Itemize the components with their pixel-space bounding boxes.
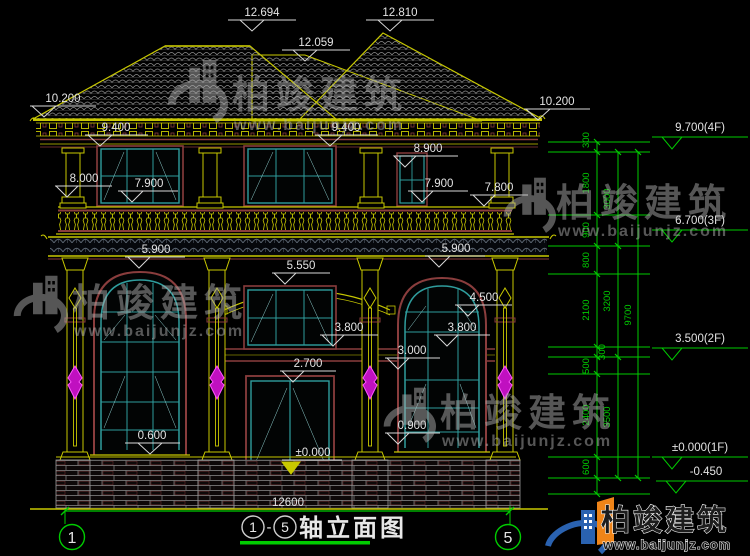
chain-seg: 300 xyxy=(597,344,608,360)
canopy-slab xyxy=(41,235,556,259)
axis-bubble-5: 5 xyxy=(496,525,521,550)
dim-arch-center: 5.550 xyxy=(287,260,316,272)
column-2f-4 xyxy=(489,148,515,208)
dim-rail-left: 7.900 xyxy=(135,178,164,190)
right-level-flags: 9.700(4F) 6.700(3F) 3.500(2F) ±0.000(1F)… xyxy=(652,122,748,493)
level-2f: 3.500(2F) xyxy=(675,333,725,345)
flag-1f: ±0.000(1F) xyxy=(652,442,748,469)
dim-eave-left: 10.200 xyxy=(45,93,80,105)
axis-bubble-1: 1 xyxy=(60,525,85,550)
drawing-title: 1 - 5 轴立面图 xyxy=(240,514,407,545)
window-1f-center xyxy=(244,286,336,349)
dim-head-right: 3.800 xyxy=(448,322,477,334)
brand-url: www.baijunjz.com xyxy=(602,537,731,552)
watermark-url: www.baijunjz.com xyxy=(441,433,612,450)
column-2f-3 xyxy=(358,148,384,208)
chain-seg: 300 xyxy=(581,132,592,148)
level-4f: 9.700(4F) xyxy=(675,122,725,134)
title-text: 轴立面图 xyxy=(299,514,407,542)
elevation-drawing: 12.694 12.810 12.059 10.200 10.200 9.400… xyxy=(0,0,750,556)
chain-seg: 500 xyxy=(581,358,592,374)
flag-2f: 3.500(2F) xyxy=(652,333,748,360)
dim-capital-left: 8.000 xyxy=(70,173,99,185)
level-1f: ±0.000(1F) xyxy=(672,442,728,454)
dim-sill-left: 0.600 xyxy=(138,430,167,442)
title-dash: - xyxy=(267,519,272,536)
overall-width-dim: 12600 xyxy=(272,497,304,509)
flag-eave-right: 10.200 xyxy=(524,96,590,120)
chain-seg: 2100 xyxy=(581,299,592,320)
watermark-name: 柏竣建筑 xyxy=(72,283,248,325)
brand-name: 柏竣建筑 xyxy=(601,503,729,537)
axis-1-label: 1 xyxy=(68,530,77,547)
dim-arch-right: 4.500 xyxy=(470,292,499,304)
window-2f-center xyxy=(244,146,336,206)
flag-grade: -0.450 xyxy=(656,466,748,493)
dim-rail-mid: 7.900 xyxy=(425,178,454,190)
chain-total: 9700 xyxy=(623,304,634,325)
cad-elevation-screenshot: 12.694 12.810 12.059 10.200 10.200 9.400… xyxy=(0,0,750,556)
balustrade-2f xyxy=(56,207,514,234)
dim-ground-center: ±0.000 xyxy=(295,447,330,459)
dim-door-head: 2.700 xyxy=(294,358,323,370)
dim-band-right: 3.000 xyxy=(398,345,427,357)
watermark-left: 柏竣建筑 www.baijunjz.com xyxy=(17,276,248,340)
watermark-url: www.baijunjz.com xyxy=(233,117,404,134)
title-axis-to: 5 xyxy=(281,519,289,535)
chain-seg: 600 xyxy=(581,459,592,475)
dim-peak-left: 12.694 xyxy=(244,7,280,19)
dim-canopy-right: 5.900 xyxy=(442,243,471,255)
chain-seg: 800 xyxy=(581,252,592,268)
watermark-logo-icon xyxy=(507,178,553,230)
dim-eave-right: 10.200 xyxy=(539,96,574,108)
watermark-name: 柏竣建筑 xyxy=(440,393,616,435)
watermark-right: 柏竣建筑 www.baijunjz.com xyxy=(507,178,732,240)
flag-4f: 9.700(4F) xyxy=(652,122,748,149)
dim-rail-right: 7.800 xyxy=(485,182,514,194)
second-floor xyxy=(41,146,556,259)
dim-peak-right: 12.810 xyxy=(382,7,417,19)
dim-canopy-left: 5.900 xyxy=(142,244,171,256)
axis-5-label: 5 xyxy=(504,530,513,547)
title-axis-from: 1 xyxy=(249,519,257,535)
column-2f-2 xyxy=(197,148,223,208)
watermark-url: www.baijunjz.com xyxy=(557,223,728,240)
window-2f-attic xyxy=(397,153,427,206)
chain-seg: 3200 xyxy=(602,290,613,311)
dim-head-center: 3.800 xyxy=(335,322,364,334)
flag-peak-left: 12.694 xyxy=(228,7,296,31)
watermark-name: 柏竣建筑 xyxy=(232,75,408,117)
level-grade: -0.450 xyxy=(690,466,723,478)
watermark-url: www.baijunjz.com xyxy=(73,323,244,340)
watermark-logo-icon xyxy=(17,276,64,330)
watermark-name: 柏竣建筑 xyxy=(556,183,732,225)
brand-logo: 柏竣建筑 www.baijunjz.com xyxy=(548,497,731,552)
dim-win-attic: 8.900 xyxy=(414,143,443,155)
brand-tower-blue xyxy=(581,510,595,544)
title-underline xyxy=(240,541,370,545)
window-2f-left xyxy=(97,146,183,206)
dim-band-left: 9.400 xyxy=(102,122,131,134)
flag-peak-right: 12.810 xyxy=(366,7,434,31)
dim-ridge-mid: 12.059 xyxy=(298,37,333,49)
flag-arch-center: 5.550 xyxy=(272,260,330,284)
